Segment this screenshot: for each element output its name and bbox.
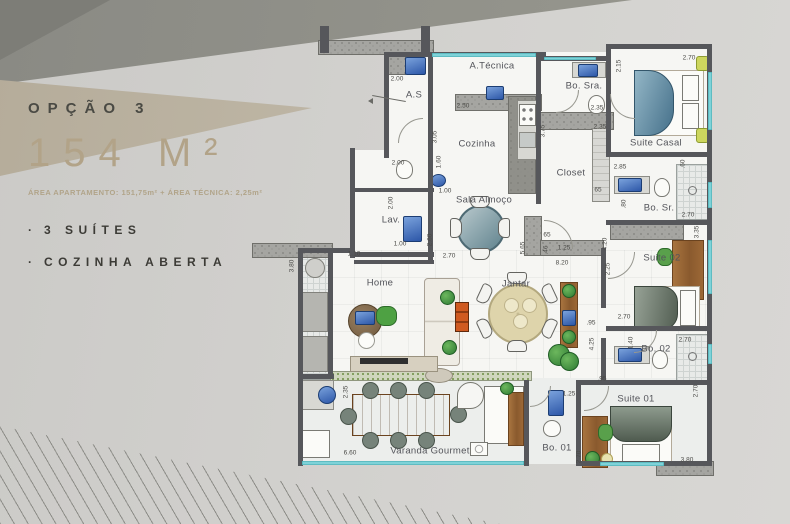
- dimension-label: 4.25: [589, 338, 596, 351]
- dimension-label: .46: [543, 245, 550, 254]
- dimension-label: 2.70: [682, 212, 695, 219]
- dimension-label: 3.75: [540, 125, 547, 138]
- dimension-label: 2.35: [594, 124, 607, 131]
- dimension-label: .60: [680, 159, 687, 168]
- dimension-label: 3.80: [681, 457, 694, 464]
- dimension-label: 2.00: [392, 160, 405, 167]
- dimension-label: 1.25: [558, 245, 571, 252]
- dimension-label: 2.60: [427, 234, 434, 247]
- dimension-label: 5.65: [520, 242, 527, 255]
- dimension-label: 2.85: [614, 164, 627, 171]
- dimension-label: 2.00: [391, 76, 404, 83]
- dimension-label: 3.35: [694, 226, 701, 239]
- dimension-label: 2.70: [576, 451, 583, 464]
- plan-dim-labels: 2.002.503.051.602.002.001.001.002.602.70…: [0, 0, 790, 524]
- dimension-label: .80: [621, 199, 628, 208]
- dimension-label: 2.70: [693, 385, 700, 398]
- dimension-label: 2.70: [679, 337, 692, 344]
- dimension-label: 65: [543, 232, 550, 239]
- dimension-label: 1.00: [394, 241, 407, 248]
- dimension-label: 1.10: [348, 251, 361, 258]
- dimension-label: 2.70: [443, 253, 456, 260]
- dimension-label: 2.15: [616, 60, 623, 73]
- dimension-label: 4.20: [602, 238, 609, 251]
- dimension-label: 3.80: [289, 260, 296, 273]
- dimension-label: 65: [594, 187, 601, 194]
- dimension-label: 2.00: [388, 197, 395, 210]
- dimension-label: .95: [597, 376, 606, 383]
- dimension-label: 2.35: [343, 386, 350, 399]
- dimension-label: 2.70: [618, 314, 631, 321]
- floor-plan: A.TécnicaA.SCozinhaBo. Sra.Suite CasalCl…: [0, 0, 790, 524]
- dimension-label: 1.60: [436, 156, 443, 169]
- dimension-label: 1.00: [439, 188, 452, 195]
- dimension-label: 2.50: [457, 103, 470, 110]
- dimension-label: 1.40: [628, 337, 635, 350]
- dimension-label: 2.70: [683, 55, 696, 62]
- dimension-label: 8.20: [556, 260, 569, 267]
- dimension-label: 1.25: [563, 391, 576, 398]
- presentation-board: OPÇÃO 3 154 M² ÁREA APARTAMENTO: 151,75m…: [0, 0, 790, 524]
- dimension-label: 2.25: [605, 263, 612, 276]
- dimension-label: 3.05: [432, 131, 439, 144]
- dimension-label: 2.35: [591, 105, 604, 112]
- dimension-label: .95: [586, 320, 595, 327]
- dimension-label: 6.60: [344, 450, 357, 457]
